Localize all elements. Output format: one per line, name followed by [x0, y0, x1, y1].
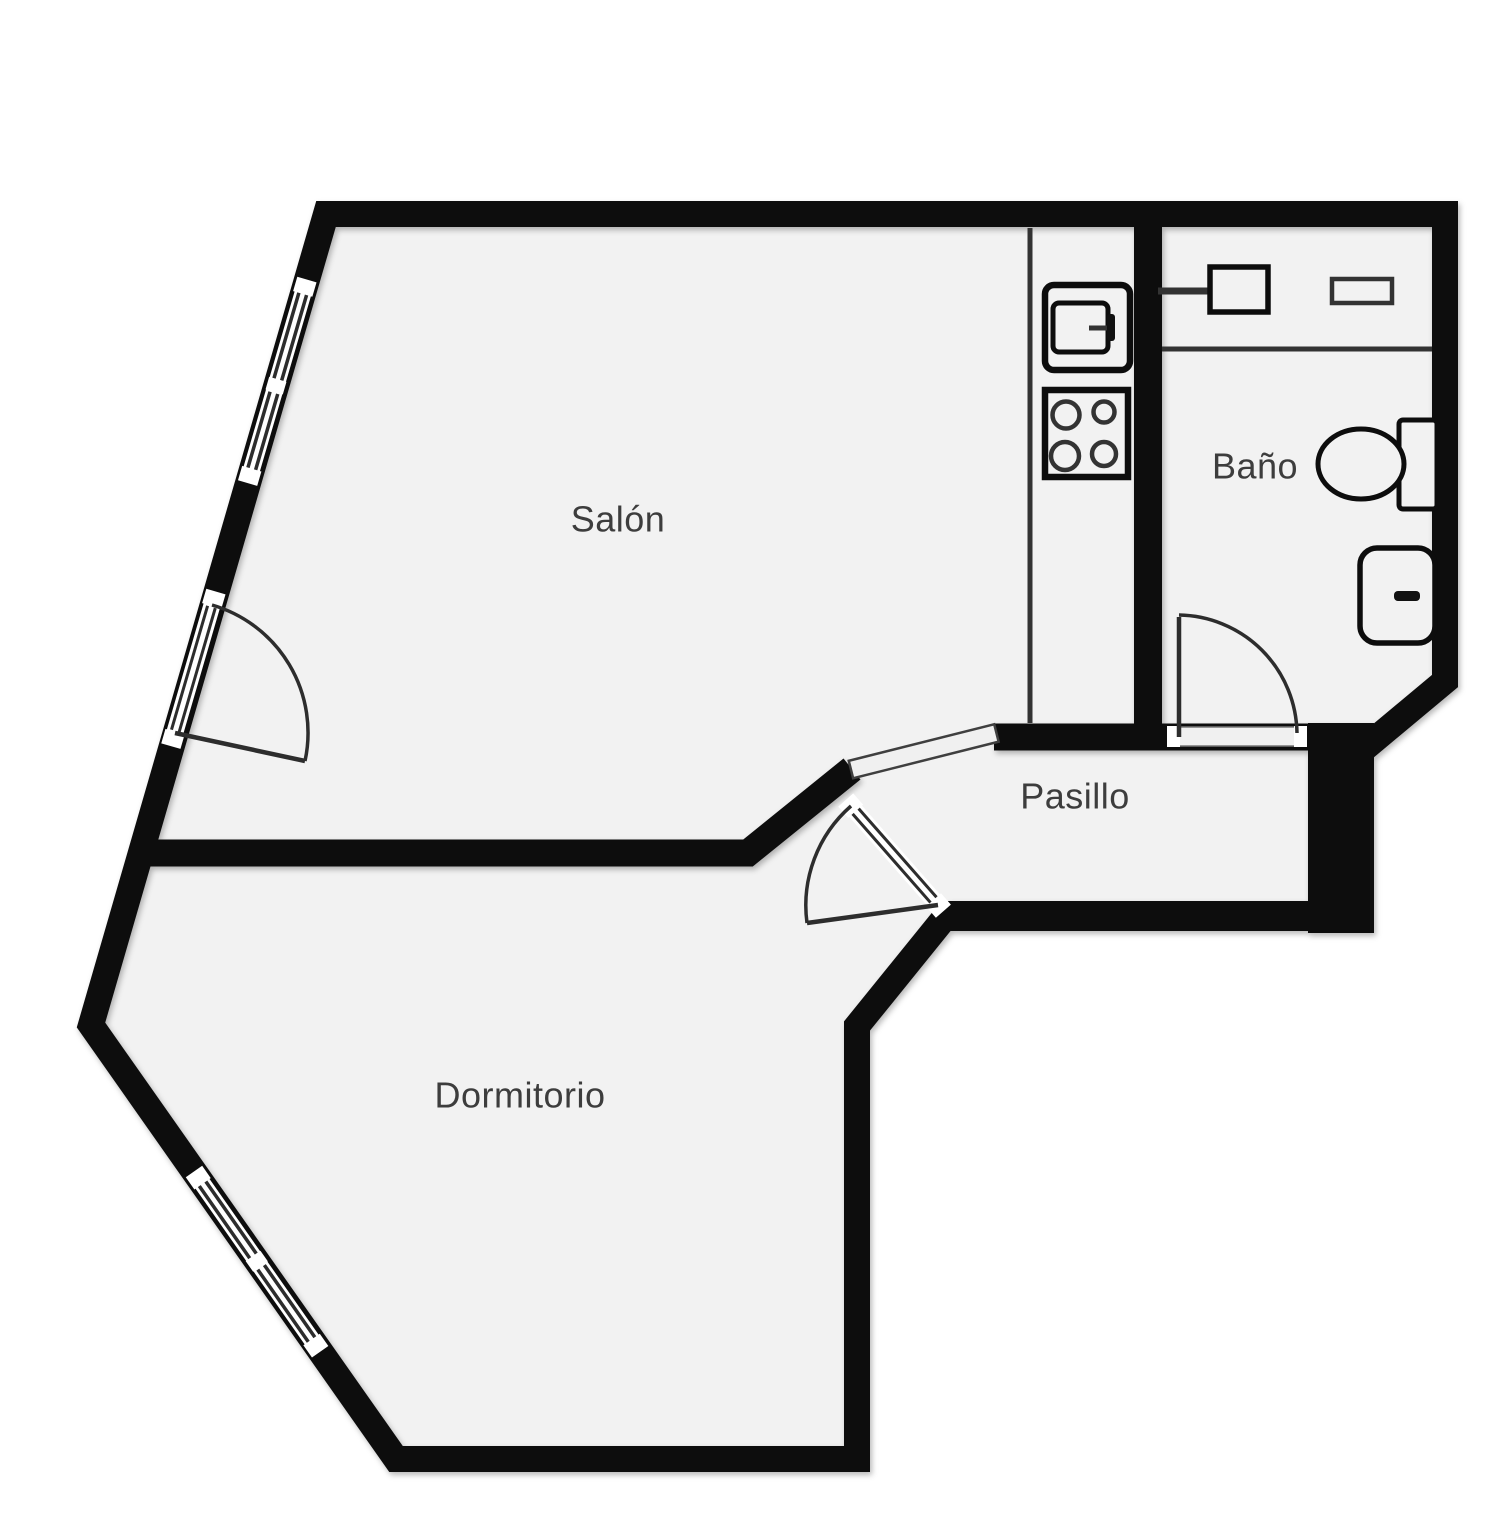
bano-door-threshold: [1167, 726, 1307, 747]
kitchen-sink-icon: [1045, 285, 1130, 370]
pasillo-label: Pasillo: [1020, 776, 1130, 817]
bidet-icon: [1360, 548, 1435, 643]
salon-label: Salón: [571, 499, 666, 540]
pillar: [1308, 723, 1374, 933]
bidet-drain: [1394, 591, 1420, 601]
faucet-handle: [1107, 314, 1115, 341]
floor-plan-drawing: Salón Baño Pasillo Dormitorio: [0, 0, 1500, 1517]
floor-plan-page: Salón Baño Pasillo Dormitorio: [0, 0, 1500, 1517]
dormitorio-label: Dormitorio: [434, 1075, 605, 1116]
stove-4-burner-icon: [1045, 390, 1128, 477]
bano-label: Baño: [1212, 446, 1298, 487]
toilet-bowl: [1318, 429, 1404, 499]
